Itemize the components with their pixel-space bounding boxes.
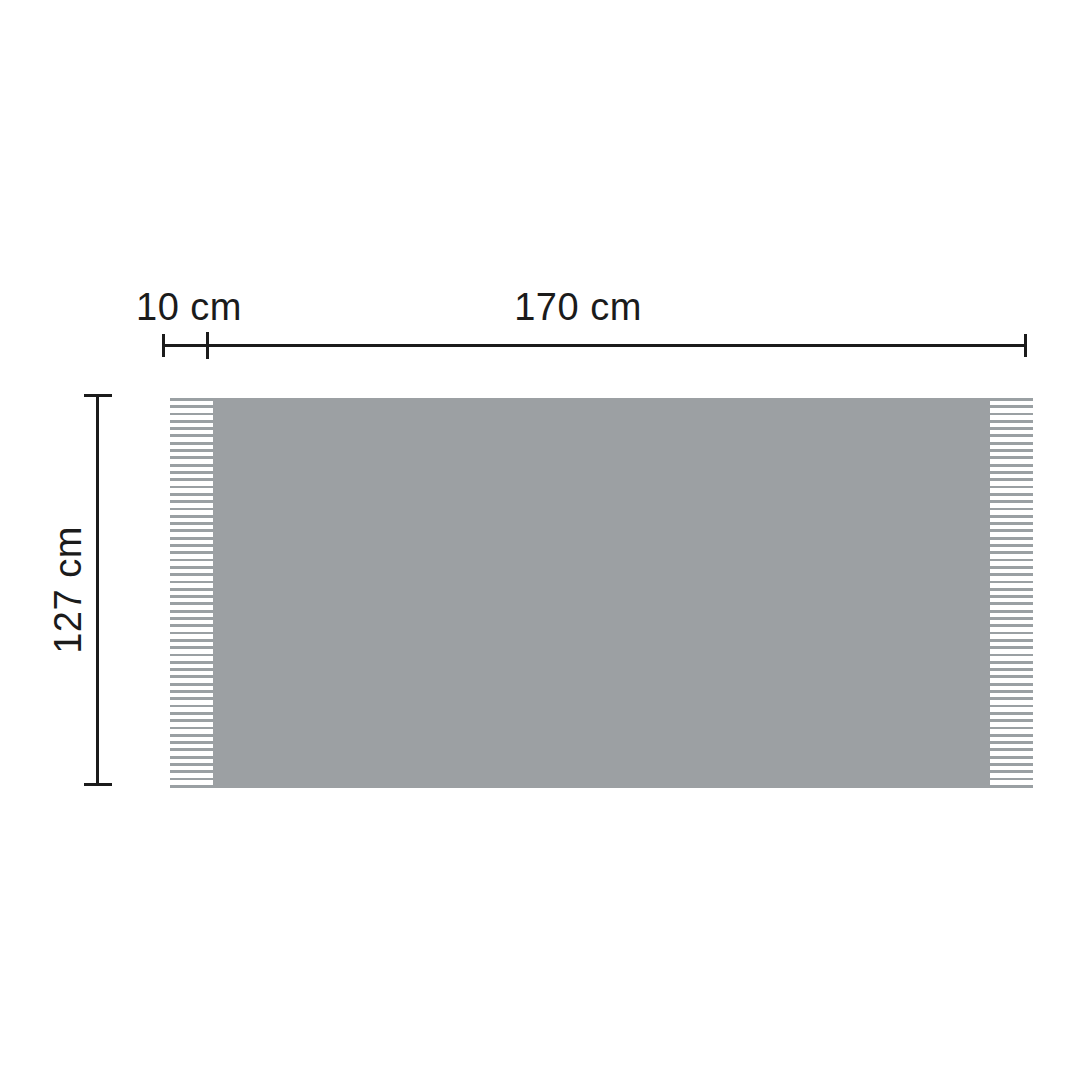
height-dimension-tick-bottom xyxy=(84,783,112,786)
width-dimension-line xyxy=(163,344,1027,347)
width-dimension-tick-right xyxy=(1024,334,1027,357)
blanket-width-label: 170 cm xyxy=(514,286,642,329)
height-dimension-tick-top xyxy=(84,394,112,397)
fringe-width-label: 10 cm xyxy=(136,286,242,329)
height-dimension-line xyxy=(96,395,99,785)
blanket-fringe-left xyxy=(170,398,213,788)
blanket-fringe-right xyxy=(990,398,1033,788)
blanket-body xyxy=(213,398,990,788)
blanket-height-label: 127 cm xyxy=(46,490,90,690)
width-dimension-tick-fringe-divider xyxy=(206,332,209,359)
blanket-dimension-diagram: 10 cm 170 cm 127 cm xyxy=(0,0,1080,1080)
width-dimension-tick-left xyxy=(162,334,165,357)
